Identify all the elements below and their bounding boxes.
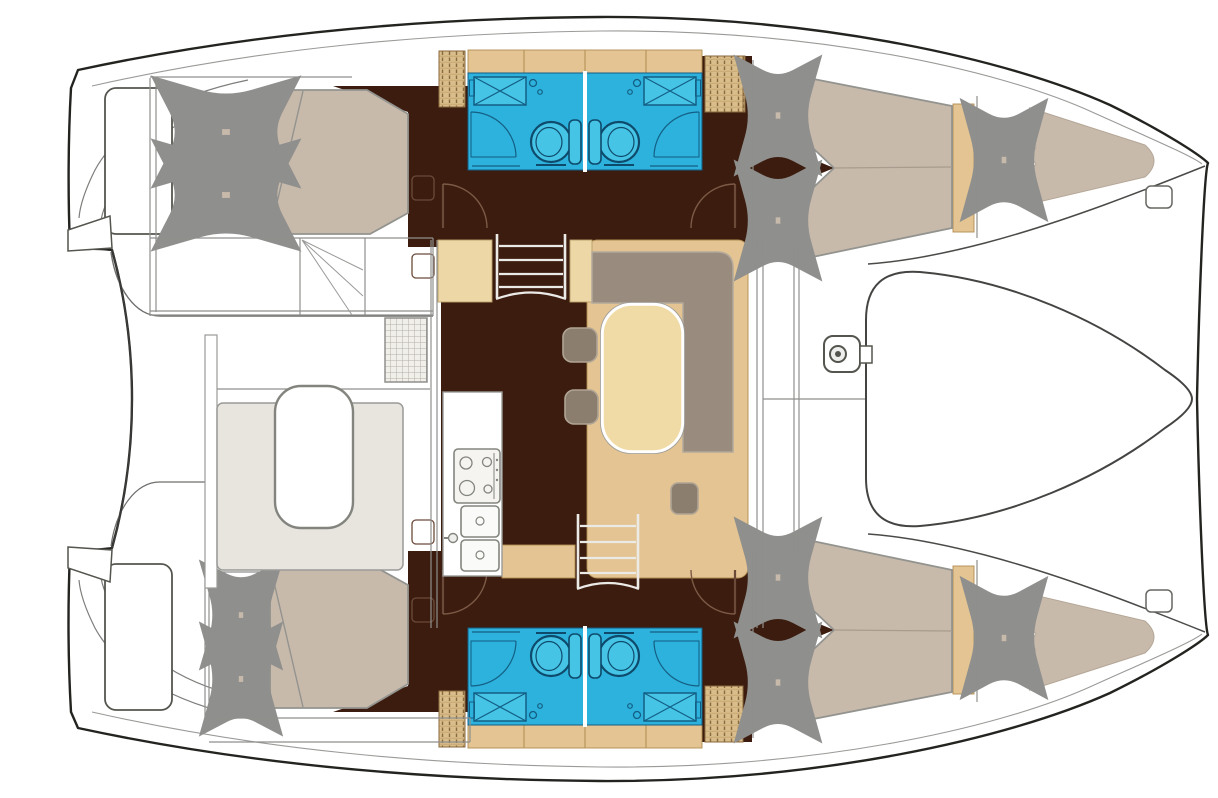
floorplan-page xyxy=(0,0,1218,798)
stool xyxy=(563,328,597,362)
cockpit-side-rail xyxy=(205,335,217,588)
aft-bed-bottom xyxy=(222,564,408,708)
aft-bed-top xyxy=(192,90,408,234)
saloon-table xyxy=(602,304,683,452)
step-side-cabinet-left xyxy=(438,240,492,302)
stool xyxy=(671,483,698,514)
locker-top-left xyxy=(439,51,465,107)
step-side-cabinet-right xyxy=(570,240,592,302)
saloon-counter-strip xyxy=(502,545,575,578)
locker-bottom-left xyxy=(439,691,465,747)
stool xyxy=(565,390,598,424)
head-top-left xyxy=(468,73,585,170)
bow-fitting-bottom xyxy=(1146,590,1172,612)
head-bottom-right xyxy=(585,628,702,725)
cockpit-table xyxy=(275,386,353,528)
companionway-top xyxy=(492,230,570,302)
head-bottom-left xyxy=(468,628,585,725)
swim-platform-bottom xyxy=(105,564,172,710)
companionway-grate xyxy=(385,318,427,382)
head-top-right xyxy=(585,73,702,170)
stove-icon xyxy=(454,449,500,503)
galley xyxy=(443,392,502,576)
bow-fitting-top xyxy=(1146,186,1172,208)
floorplan-canvas xyxy=(0,0,1218,798)
swim-platform-top xyxy=(105,88,172,234)
